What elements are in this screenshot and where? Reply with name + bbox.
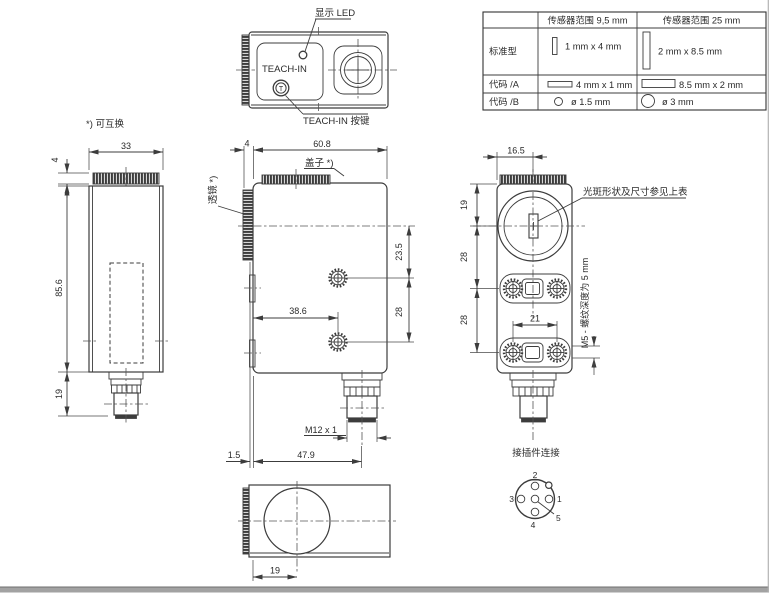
- bottom-view: 19: [238, 481, 396, 581]
- dim-connector-19: 19: [54, 389, 64, 399]
- pin-label-2: 2: [533, 470, 538, 480]
- table-row-label-code-b: 代码 /B: [489, 97, 519, 107]
- table-row-label-code-a: 代码 /A: [489, 80, 520, 90]
- cover-label: 盖子 *): [305, 157, 334, 169]
- dim-hole-spacing-28: 28: [394, 307, 404, 317]
- display-led-label: 显示 LED: [315, 8, 355, 19]
- pinout-title: 接插件连接: [512, 447, 560, 459]
- teach-in-button-label: TEACH-IN 按键: [303, 115, 370, 127]
- spot-note-label: 光斑形状及尺寸参见上表: [583, 186, 688, 198]
- teach-button-glyph: T: [279, 86, 284, 93]
- m5-thread-note: M5 - 螺纹深度为 5 mm: [579, 258, 590, 349]
- table-cell: ø 1.5 mm: [571, 97, 611, 107]
- dim-hole2-38-6: 38.6: [289, 306, 307, 316]
- dim-slot-holes-21: 21: [530, 314, 540, 324]
- dim-hole1-23-5: 23.5: [394, 243, 404, 261]
- dim-lens-protrusion-4: 4: [50, 157, 60, 162]
- dim-width-33: 33: [121, 141, 131, 151]
- pin-label-5: 5: [556, 513, 561, 523]
- front-view: 盖子 *) 透镜 *) 4 60.8 23.5 28: [207, 139, 415, 469]
- side-view: *) 可互换 33 4 85.6 19: [50, 118, 169, 424]
- dim-width-60-8: 60.8: [313, 139, 331, 149]
- lens-knurl-strip: [243, 190, 253, 260]
- screw-icon: [548, 280, 566, 298]
- connector-plug: [520, 396, 547, 418]
- dim-lens-face-1-5: 1.5: [228, 450, 241, 460]
- table-cell: ø 3 mm: [662, 97, 694, 107]
- dim-connector-47-9: 47.9: [297, 450, 315, 460]
- table-row-label-standard: 标准型: [489, 46, 517, 57]
- connector-pinout: 接插件连接 2 3 1 4 5: [509, 447, 562, 530]
- lens-label: 透镜 *): [207, 176, 219, 205]
- dim-lens-width-4: 4: [244, 139, 249, 149]
- dim-lens-center-19: 19: [459, 200, 469, 210]
- optical-face-view: 16.5 光斑形状及尺寸参见上表 19 28 28: [459, 146, 688, 441]
- table-cell: 8.5 mm x 2 mm: [679, 80, 743, 90]
- dim-height-85-6: 85.6: [54, 279, 64, 297]
- dim-spacing-28b: 28: [459, 315, 469, 325]
- screw-icon: [548, 344, 566, 362]
- screw-icon: [504, 344, 522, 362]
- screw-icon: [504, 280, 522, 298]
- dim-lens-center-19: 19: [270, 566, 280, 576]
- interchangeable-note: *) 可互换: [86, 118, 125, 130]
- spot-size-table: 传感器范围 9,5 mm 传感器范围 25 mm 标准型 1 mm x 4 mm…: [483, 12, 766, 110]
- dim-width-16-5: 16.5: [507, 146, 525, 156]
- table-cell: 4 mm x 1 mm: [576, 80, 633, 90]
- keying-notch: [546, 482, 552, 488]
- footer-bar: [0, 587, 769, 593]
- datasheet-dimension-page: TEACH-IN T 显示 LED TEACH-IN 按键 传感器范围 9,5 …: [0, 0, 769, 595]
- top-view: TEACH-IN T 显示 LED TEACH-IN 按键: [236, 8, 397, 127]
- technical-drawing: TEACH-IN T 显示 LED TEACH-IN 按键 传感器范围 9,5 …: [0, 0, 769, 595]
- pin-label-1: 1: [557, 494, 562, 504]
- pin-label-3: 3: [509, 494, 514, 504]
- dim-spacing-28a: 28: [459, 252, 469, 262]
- led-indicator-icon: [299, 51, 307, 59]
- table-header-range-25: 传感器范围 25 mm: [663, 15, 741, 26]
- screw-icon: [330, 270, 347, 287]
- teach-in-panel-label: TEACH-IN: [262, 64, 307, 75]
- dim-thread-m12: M12 x 1: [305, 425, 337, 435]
- pin-label-4: 4: [531, 520, 536, 530]
- table-cell: 2 mm x 8.5 mm: [658, 47, 722, 57]
- table-header-range-95: 传感器范围 9,5 mm: [547, 15, 627, 26]
- screw-icon: [330, 334, 347, 351]
- sensor-body-side: [89, 186, 163, 372]
- table-cell: 1 mm x 4 mm: [565, 42, 622, 52]
